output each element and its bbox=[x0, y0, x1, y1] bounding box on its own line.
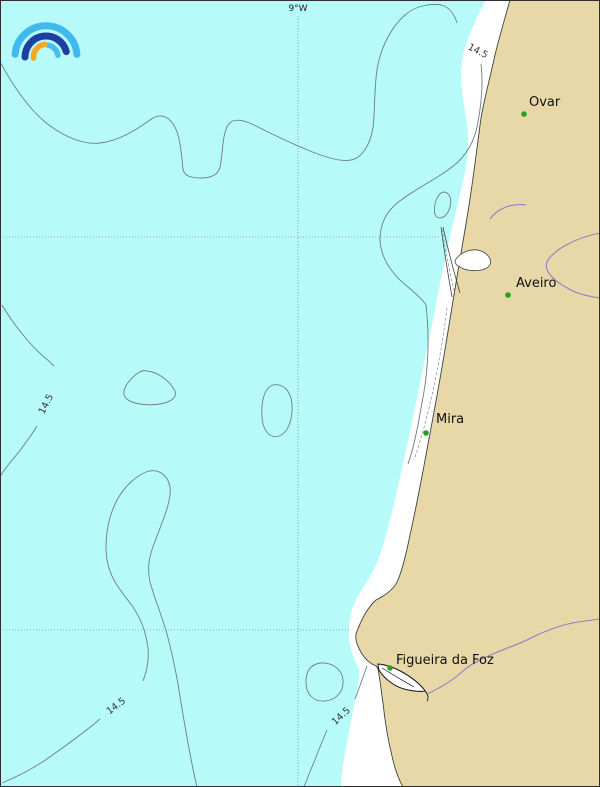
city-label-mira: Mira bbox=[436, 412, 464, 427]
map-canvas: Ovar Aveiro Mira Figueira da Foz 14.5 14… bbox=[0, 0, 600, 787]
city-dot-aveiro bbox=[505, 292, 511, 298]
city-dot-mira bbox=[423, 430, 429, 436]
city-label-figueira: Figueira da Foz bbox=[396, 653, 494, 668]
coastal-map-figure: Ovar Aveiro Mira Figueira da Foz 14.5 14… bbox=[0, 0, 600, 787]
city-dot-ovar bbox=[521, 111, 527, 117]
city-label-ovar: Ovar bbox=[529, 95, 561, 110]
city-label-aveiro: Aveiro bbox=[516, 276, 556, 291]
city-dot-figueira bbox=[387, 665, 393, 671]
meridian-label: 9°W bbox=[288, 4, 307, 14]
